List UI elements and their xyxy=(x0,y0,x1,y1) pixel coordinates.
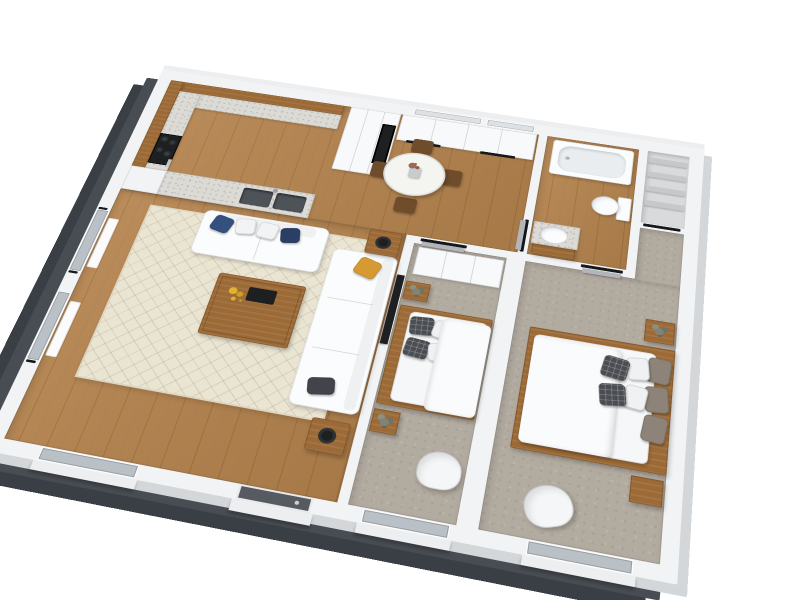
floorplan-render-canvas xyxy=(0,0,800,600)
wardrobe-seam xyxy=(470,256,477,284)
floor-closet-notch xyxy=(635,228,684,288)
window-frame-mark xyxy=(68,270,78,274)
pillow-taupe xyxy=(644,386,669,414)
stove-burner xyxy=(162,150,172,157)
window-frame-mark xyxy=(26,359,37,363)
pillow-white xyxy=(626,357,650,381)
wardrobe-seam xyxy=(440,251,447,279)
closet-seam xyxy=(463,124,470,150)
pillow-dark xyxy=(306,377,335,395)
cushion-seam xyxy=(312,346,359,355)
bathtub-inner xyxy=(556,145,627,180)
pillow-plaid xyxy=(598,383,626,407)
dining-chair xyxy=(392,196,417,214)
cushion-seam xyxy=(327,297,373,305)
pillow-white xyxy=(234,218,257,234)
pillow-navy xyxy=(280,228,300,243)
cabinet-seam xyxy=(349,109,369,171)
closet-seam xyxy=(497,129,503,155)
apartment-building xyxy=(0,69,704,584)
stove-burner xyxy=(168,140,177,146)
entry-door-handle xyxy=(294,500,299,505)
